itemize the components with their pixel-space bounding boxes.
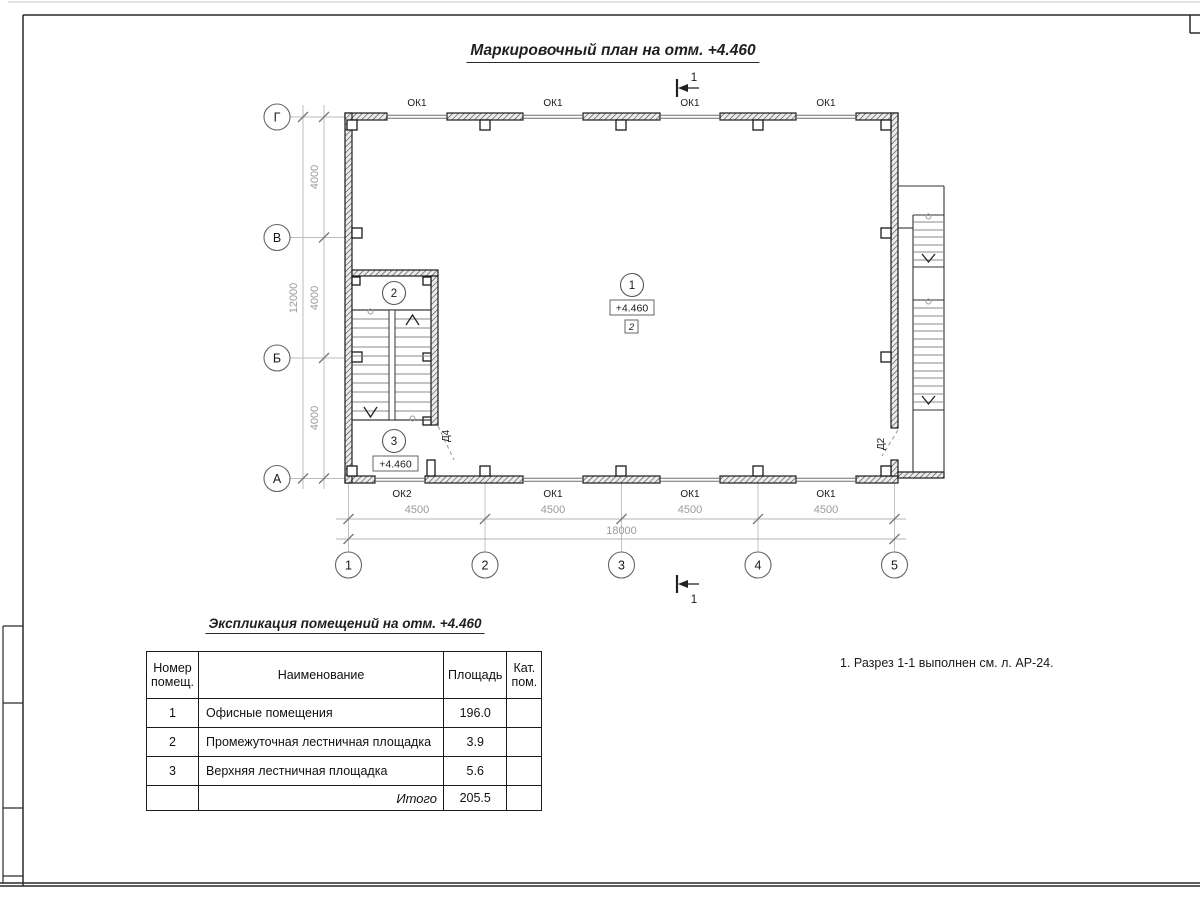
- door-d4-leaf: [427, 460, 435, 476]
- room-name-cell: Верхняя лестничная площадка: [199, 757, 444, 786]
- note-text: 1. Разрез 1-1 выполнен см. л. АР-24.: [840, 656, 1054, 670]
- drawing-sheet: 4000 4000 4000 12000 4500 4500 4500 4500…: [0, 0, 1200, 900]
- section-mark-bottom: 1: [691, 594, 697, 606]
- axis-col-5: 5: [891, 559, 898, 573]
- table-row: 1 Офисные помещения 196.0: [147, 699, 542, 728]
- window-label: ОК1: [680, 489, 700, 500]
- table-total-row: Итого 205.5: [147, 786, 542, 811]
- room-3-elevation: +4.460: [379, 459, 412, 471]
- dim-row-2: 4000: [309, 286, 321, 310]
- stair-down-arrow: [364, 407, 377, 417]
- window-label: ОК1: [816, 98, 836, 109]
- dim-col-4: 4500: [814, 504, 838, 516]
- total-label-cell: Итого: [199, 786, 444, 811]
- walls: [345, 113, 944, 483]
- ext-stair-arrow-2: [922, 396, 935, 404]
- room-area-cell: 3.9: [444, 728, 507, 757]
- room-number-cell: 2: [147, 728, 199, 757]
- axis-col-2: 2: [482, 559, 489, 573]
- section-mark-top: 1: [691, 72, 697, 84]
- dim-col-2: 4500: [541, 504, 565, 516]
- room-1-elevation: +4.460: [616, 303, 649, 315]
- room-name-cell: Промежуточная лестничная площадка: [199, 728, 444, 757]
- windows: [375, 115, 856, 481]
- axis-row-g: Г: [274, 111, 281, 125]
- room-area-cell: 5.6: [444, 757, 507, 786]
- axis-grid: [290, 117, 895, 552]
- room-name-cell: Офисные помещения: [199, 699, 444, 728]
- table-header-row: Номер помещ. Наименование Площадь Кат. п…: [147, 652, 542, 699]
- door-d4-label: Д4: [441, 429, 452, 442]
- window-labels: ОК1 ОК1 ОК1 ОК1 ОК2 ОК1 ОК1 ОК1: [392, 98, 836, 500]
- column-markers: [347, 120, 891, 476]
- stair-main: [352, 309, 431, 421]
- room-annotations: 1 +4.460 2 2 3 +4.460: [373, 274, 654, 472]
- room-1-category: 2: [628, 322, 635, 333]
- room-cat-cell: [507, 699, 542, 728]
- dim-row-3: 4000: [309, 406, 321, 430]
- window-label: ОК2: [392, 489, 412, 500]
- room-3-number: 3: [391, 436, 397, 448]
- room-number-cell: 3: [147, 757, 199, 786]
- total-area-cell: 205.5: [444, 786, 507, 811]
- room-cat-cell: [507, 728, 542, 757]
- door-d2-label: Д2: [876, 437, 887, 450]
- room-cat-cell: [507, 757, 542, 786]
- axis-row-b: Б: [273, 352, 281, 366]
- dim-col-1: 4500: [405, 504, 429, 516]
- dim-row-1: 4000: [309, 165, 321, 189]
- room-explication-table: Номер помещ. Наименование Площадь Кат. п…: [146, 651, 542, 811]
- axis-row-a: А: [273, 472, 282, 486]
- window-label: ОК1: [543, 489, 563, 500]
- dim-row-total: 12000: [288, 283, 300, 314]
- ext-stair-arrow-1: [922, 254, 935, 262]
- table-row: 3 Верхняя лестничная площадка 5.6: [147, 757, 542, 786]
- window-label: ОК1: [680, 98, 700, 109]
- room-2-number: 2: [391, 288, 397, 300]
- stair-external: [898, 186, 944, 472]
- table-row: 2 Промежуточная лестничная площадка 3.9: [147, 728, 542, 757]
- dim-col-total: 18000: [606, 525, 637, 537]
- total-empty-cell: [147, 786, 199, 811]
- axis-row-v: В: [273, 231, 281, 245]
- plan-title: Маркировочный план на отм. +4.460: [466, 42, 759, 63]
- header-room-number: Номер помещ.: [147, 652, 199, 699]
- window-label: ОК1: [407, 98, 427, 109]
- doors: Д4 Д2: [427, 426, 898, 476]
- axis-bubbles: Г В Б А 1 2 3 4 5: [264, 104, 908, 578]
- window-label: ОК1: [816, 489, 836, 500]
- axis-col-3: 3: [618, 559, 625, 573]
- margin-boxes: [3, 626, 23, 883]
- header-area: Площадь: [444, 652, 507, 699]
- header-category: Кат. пом.: [507, 652, 542, 699]
- axis-col-1: 1: [345, 559, 352, 573]
- stair-up-arrow: [406, 315, 419, 325]
- dim-col-3: 4500: [678, 504, 702, 516]
- room-area-cell: 196.0: [444, 699, 507, 728]
- header-name: Наименование: [199, 652, 444, 699]
- window-label: ОК1: [543, 98, 563, 109]
- explication-title: Экспликация помещений на отм. +4.460: [206, 616, 485, 634]
- room-number-cell: 1: [147, 699, 199, 728]
- total-cat-cell: [507, 786, 542, 811]
- section-marks: 1 1: [677, 72, 699, 606]
- axis-col-4: 4: [755, 559, 762, 573]
- room-1-number: 1: [629, 280, 635, 292]
